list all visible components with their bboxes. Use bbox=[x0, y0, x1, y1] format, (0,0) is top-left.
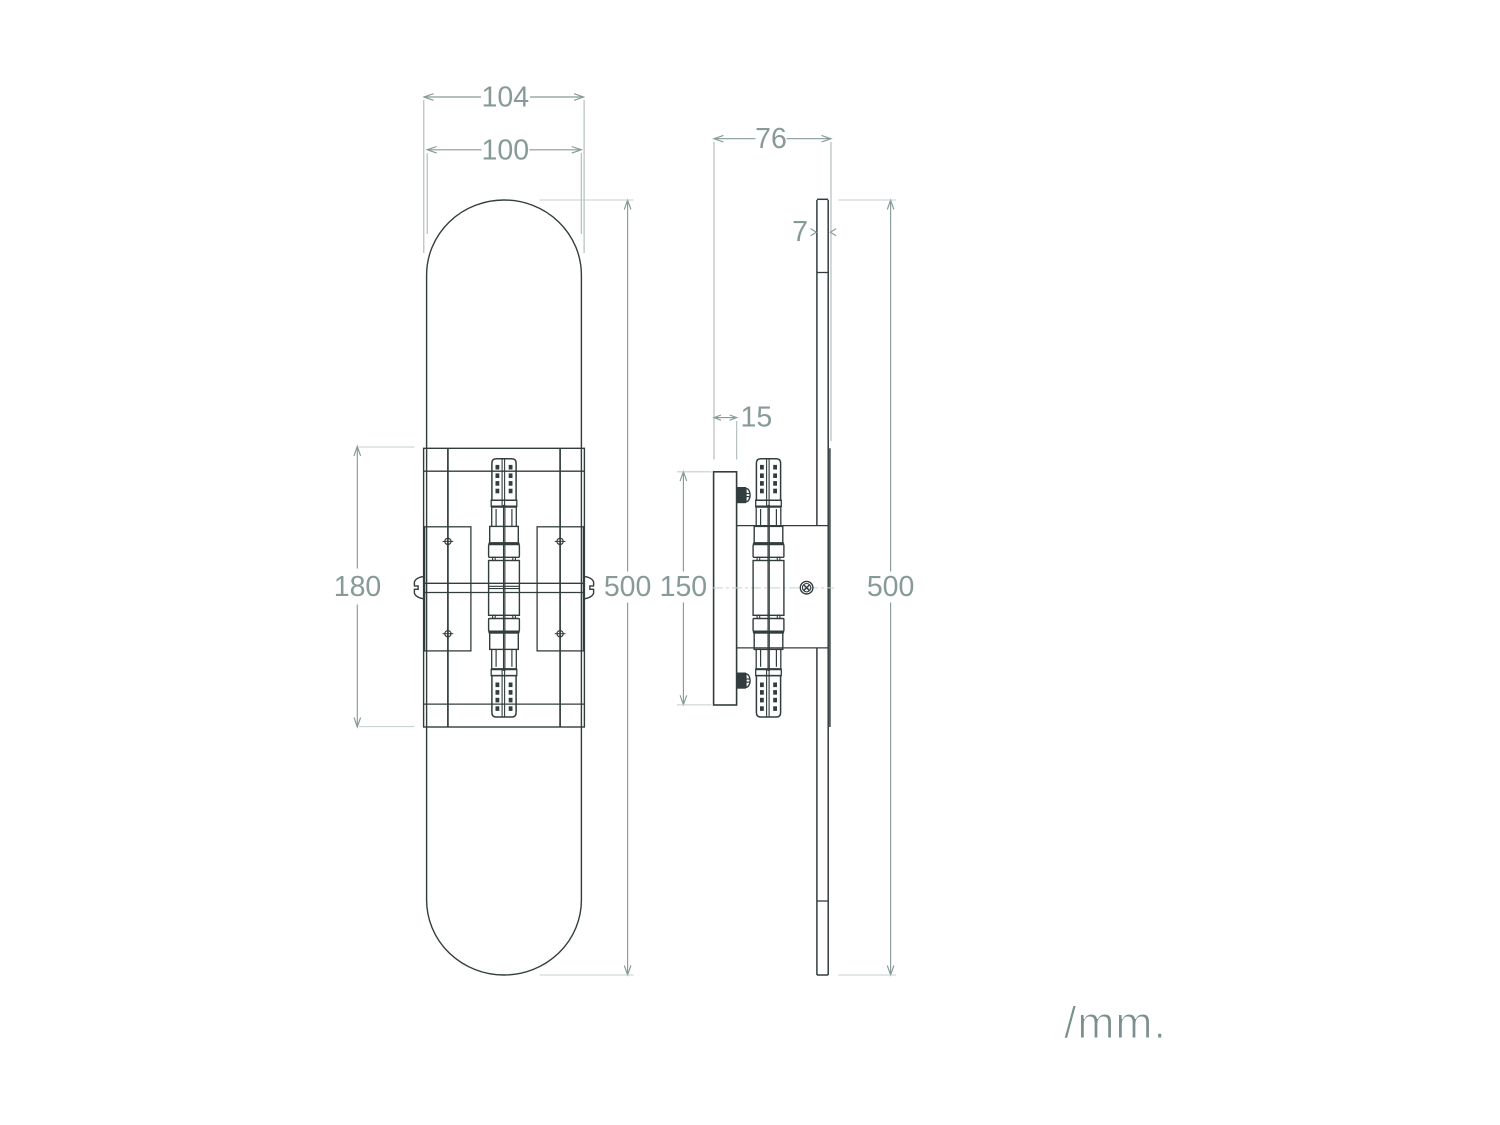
svg-text:100: 100 bbox=[482, 134, 530, 166]
svg-text:180: 180 bbox=[334, 571, 382, 603]
svg-text:500: 500 bbox=[867, 571, 915, 603]
svg-text:15: 15 bbox=[741, 401, 773, 433]
svg-text:104: 104 bbox=[482, 82, 530, 114]
svg-text:76: 76 bbox=[755, 123, 787, 155]
svg-text:7: 7 bbox=[792, 216, 808, 248]
svg-text:/mm.: /mm. bbox=[1064, 999, 1167, 1048]
svg-text:150: 150 bbox=[660, 571, 708, 603]
svg-text:500: 500 bbox=[604, 571, 652, 603]
